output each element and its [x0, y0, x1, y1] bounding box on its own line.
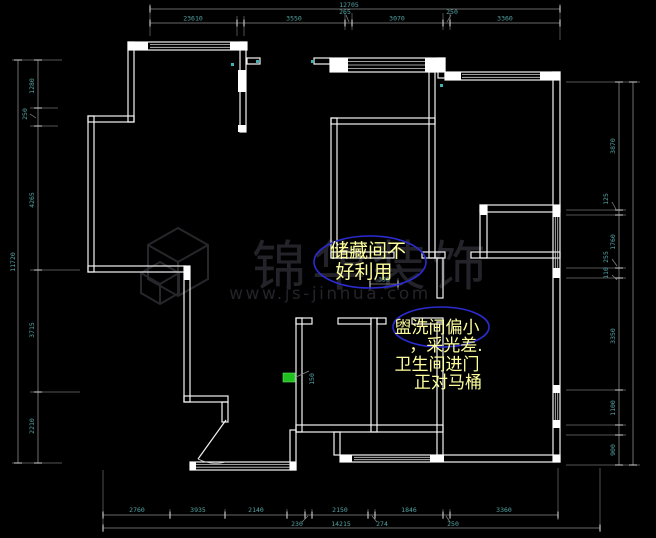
watermark-url-text: www.js-jinhua.com — [229, 284, 431, 304]
dim-top-seg-4: 250 — [446, 8, 458, 16]
wall-bath-left — [371, 318, 377, 432]
dim-right-seg-2: 1760 — [609, 234, 617, 250]
dim-top-seg-5: 3360 — [497, 15, 513, 23]
wall-lowerleft-vertical — [184, 266, 190, 402]
dim-bottom-seg-1: 3935 — [190, 506, 206, 514]
bath-note-line-0: 盥洗间偏小 — [395, 318, 480, 338]
dim-right-seg-0: 3870 — [609, 138, 617, 154]
wall-left-outer — [88, 116, 94, 272]
dim-top-seg-1: 3550 — [286, 15, 302, 23]
bottom-dimensions: 2760 3935 2140 2150 1846 3360 230 274 25… — [103, 468, 600, 532]
top-dimensions: 12705 23610 3550 265 3070 250 3360 — [150, 1, 560, 40]
dim-top-seg-0: 23610 — [183, 15, 203, 23]
wall-storage-top — [331, 118, 435, 124]
wall-lowerleft-jamb — [222, 402, 228, 422]
dim-bottom-overall: 14215 — [331, 520, 351, 528]
dim-left-seg-3: 3715 — [28, 322, 36, 338]
green-fixture-box — [283, 373, 295, 382]
dim-bottom-seg-0: 2760 — [129, 506, 145, 514]
wall-entry-b — [314, 58, 330, 64]
wall-bottom-interior — [296, 425, 443, 432]
wall-bottom-outer — [340, 455, 560, 462]
cad-viewport: 锦华装饰 www.js-jinhua.com 12705 23610 3550 … — [0, 0, 656, 538]
dim-top-seg-2: 265 — [339, 8, 351, 16]
dim-left-seg-4: 2210 — [28, 418, 36, 434]
door-leaf — [198, 420, 226, 463]
dim-right-seg-6: 1100 — [609, 400, 617, 416]
wall-bath-top-a — [296, 318, 312, 324]
dim-bottom-seg-4: 1846 — [401, 506, 417, 514]
wall-bath-top-b — [338, 318, 371, 324]
dim-bottom-seg-2: 2140 — [248, 506, 264, 514]
wall-lowerleft-step — [184, 396, 228, 402]
dim-bottom-seg-5: 3360 — [496, 506, 512, 514]
bath-note-line-2: 卫生间进门 — [395, 355, 480, 375]
green-fixture-label: 150 — [308, 373, 316, 385]
dim-bottom-leader-0: 230 — [291, 520, 303, 528]
wall-right-outer — [553, 72, 560, 462]
right-dimensions: 3870 125 1760 255 110 3350 1100 900 — [566, 82, 640, 465]
wall-bottom-connector — [334, 432, 340, 455]
green-fixture: 150 — [283, 371, 316, 385]
left-dimensions: 11720 1280 250 4265 3715 2210 — [9, 60, 80, 463]
bath-note-line-3: 正对马桶 — [414, 373, 482, 393]
wall-bath-top-c — [377, 318, 386, 324]
floor-plan-drawing: 锦华装饰 www.js-jinhua.com 12705 23610 3550 … — [0, 0, 656, 538]
dim-right-seg-7: 900 — [609, 444, 617, 456]
wall-balcony-bottom — [190, 462, 296, 470]
storage-note-line-0: 储藏间不 — [330, 240, 406, 262]
dim-left-overall: 11720 — [9, 252, 17, 272]
annotation-bath: 盥洗间偏小 ，采光差. 卫生间进门 正对马桶 — [393, 307, 489, 393]
dim-right-seg-1: 125 — [602, 193, 610, 205]
dim-bottom-seg-3: 2150 — [332, 506, 348, 514]
dim-bottom-leader-2: 250 — [447, 520, 459, 528]
dim-top-seg-3: 3070 — [389, 15, 405, 23]
dim-left-seg-1: 250 — [21, 108, 29, 120]
dim-bottom-leader-1: 274 — [376, 520, 388, 528]
wall-closet-top — [480, 205, 560, 212]
dim-right-seg-4: 110 — [602, 267, 610, 279]
dim-right-seg-5: 3350 — [609, 328, 617, 344]
dim-right-seg-3: 255 — [602, 251, 610, 263]
storage-note-line-1: 好利用 — [335, 261, 392, 283]
bath-note-line-1: ，采光差. — [409, 336, 482, 356]
wall-storage-right — [429, 72, 435, 258]
wall-left-step — [88, 116, 134, 122]
watermark: 锦华装饰 www.js-jinhua.com — [141, 228, 492, 304]
dim-left-seg-0: 1280 — [28, 78, 36, 94]
dim-left-seg-2: 4265 — [28, 192, 36, 208]
wall-topleft-left — [128, 42, 134, 122]
